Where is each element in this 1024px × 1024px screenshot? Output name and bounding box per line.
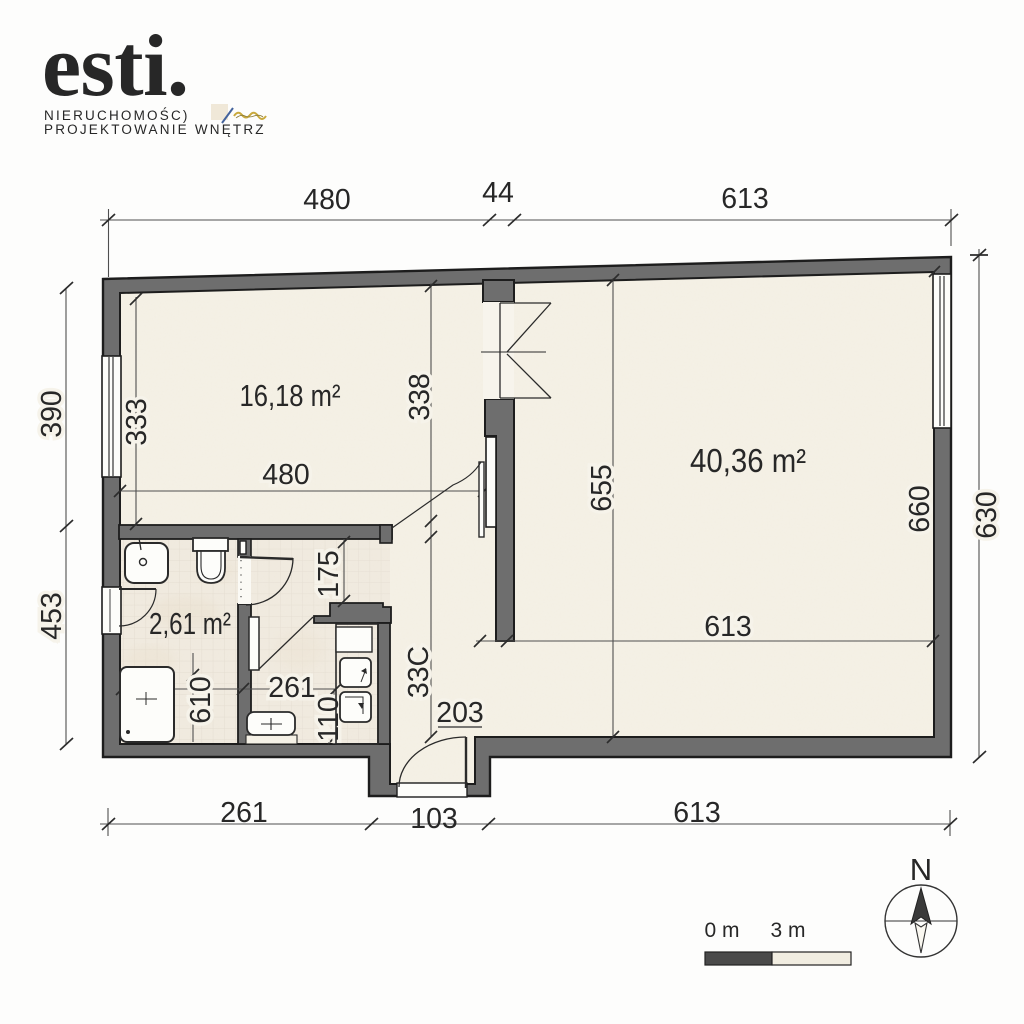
svg-text:esti.: esti. bbox=[42, 18, 189, 115]
svg-text:PROJEKTOWANIE WNĘTRZ: PROJEKTOWANIE WNĘTRZ bbox=[44, 122, 266, 137]
svg-text:660: 660 bbox=[904, 485, 936, 533]
svg-text:16,18 m²: 16,18 m² bbox=[240, 378, 341, 413]
svg-text:3 m: 3 m bbox=[770, 919, 805, 942]
svg-text:613: 613 bbox=[673, 797, 721, 829]
svg-text:613: 613 bbox=[721, 183, 769, 215]
svg-text:203: 203 bbox=[436, 697, 484, 729]
svg-text:103: 103 bbox=[410, 803, 458, 835]
svg-text:NIERUCHOMOŚC): NIERUCHOMOŚC) bbox=[44, 108, 190, 123]
svg-text:390: 390 bbox=[36, 390, 68, 438]
svg-text:33C: 33C bbox=[403, 646, 435, 698]
svg-text:480: 480 bbox=[262, 459, 310, 491]
svg-text:261: 261 bbox=[268, 672, 316, 704]
svg-text:338: 338 bbox=[404, 373, 436, 421]
svg-text:655: 655 bbox=[586, 464, 618, 512]
svg-text:40,36 m²: 40,36 m² bbox=[690, 442, 806, 479]
svg-text:2,61 m²: 2,61 m² bbox=[149, 606, 231, 641]
svg-text:0 m: 0 m bbox=[704, 919, 739, 942]
svg-text:610: 610 bbox=[185, 676, 217, 724]
svg-text:44: 44 bbox=[482, 177, 514, 209]
svg-text:N: N bbox=[910, 852, 932, 887]
svg-text:480: 480 bbox=[303, 184, 351, 216]
svg-text:333: 333 bbox=[121, 398, 153, 446]
svg-text:175: 175 bbox=[313, 550, 345, 598]
svg-text:453: 453 bbox=[36, 592, 68, 640]
svg-text:261: 261 bbox=[220, 797, 268, 829]
svg-text:613: 613 bbox=[704, 611, 752, 643]
svg-text:630: 630 bbox=[971, 491, 1003, 539]
